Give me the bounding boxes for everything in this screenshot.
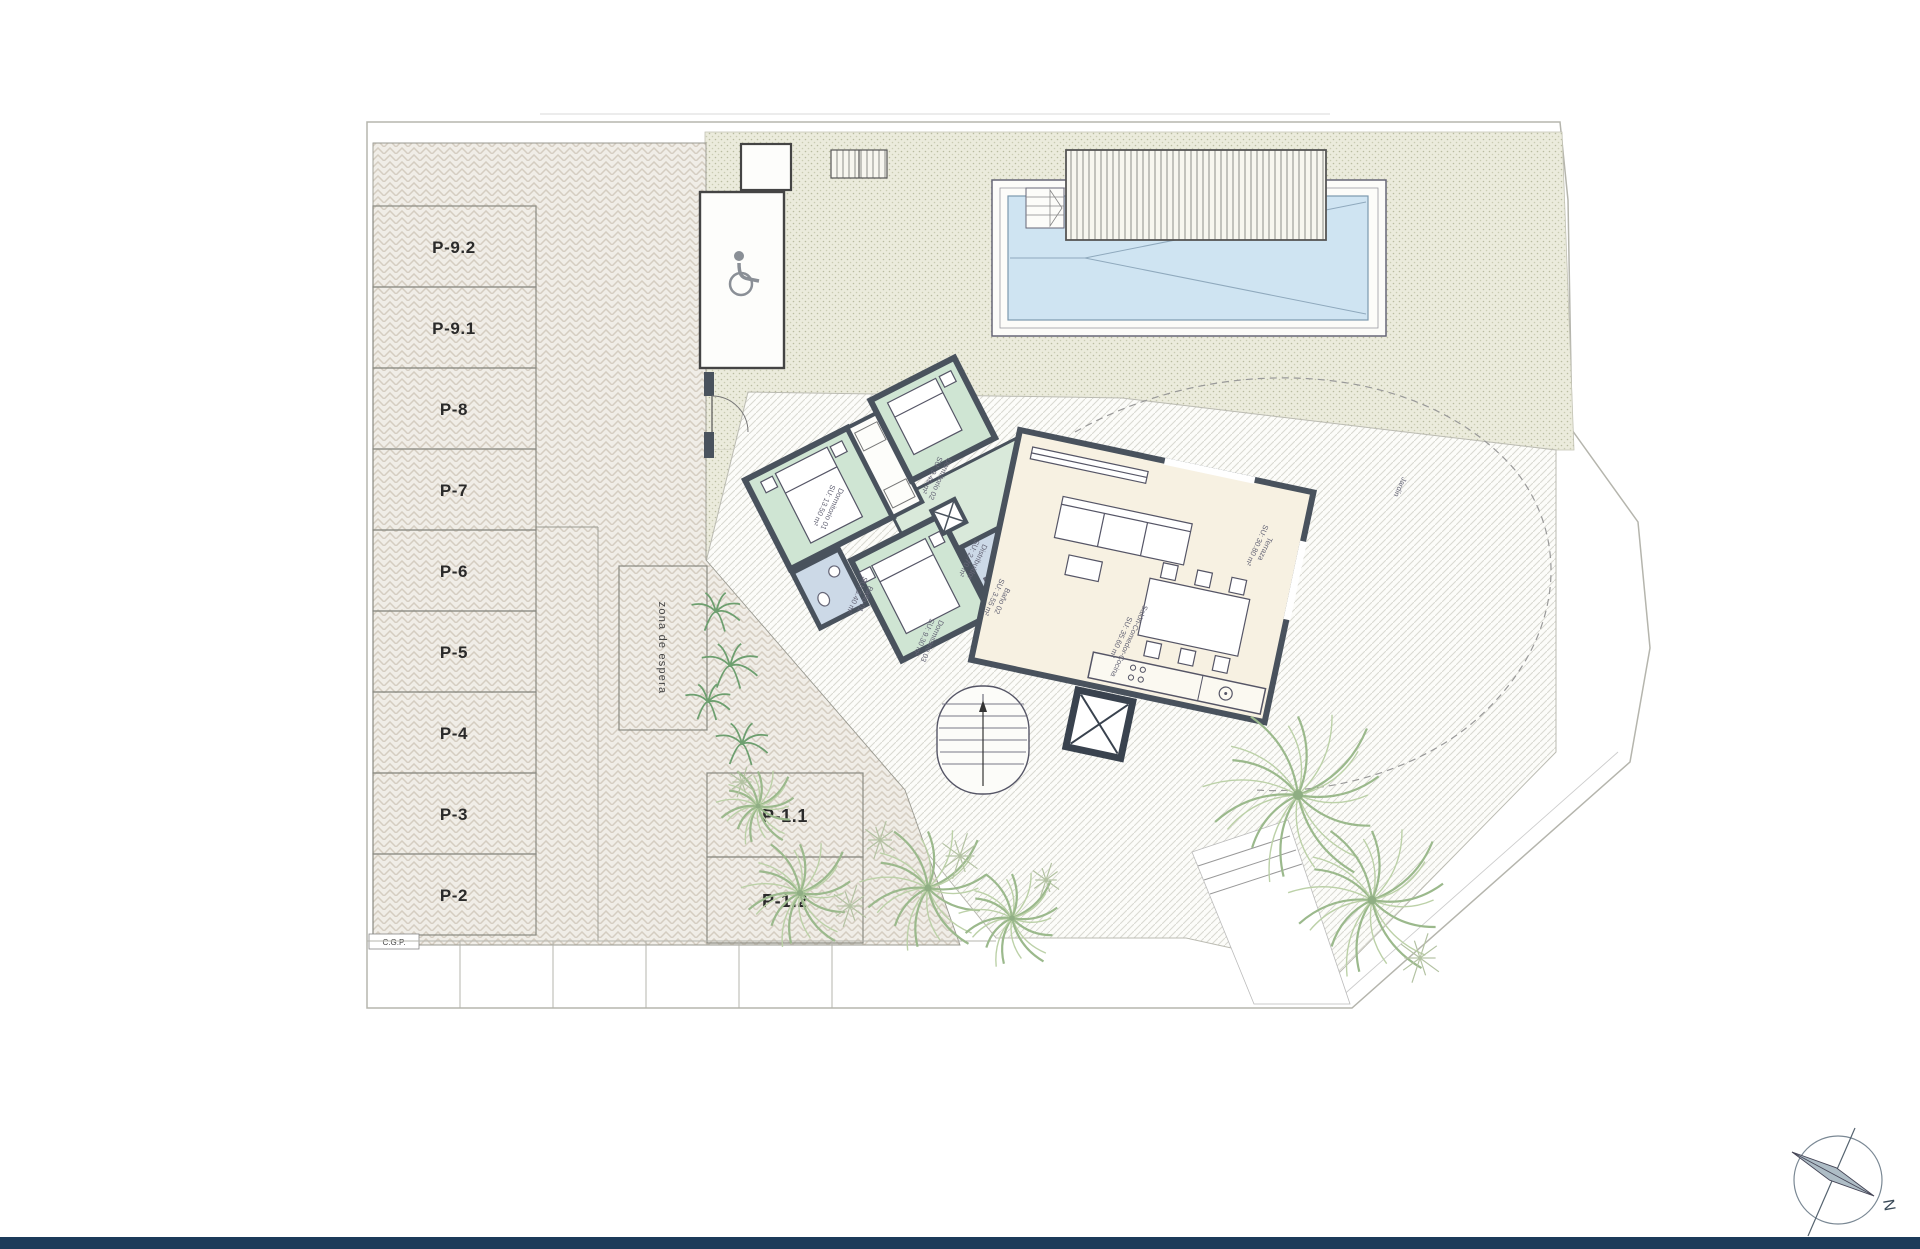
pool-steps xyxy=(1026,188,1064,228)
storage-box xyxy=(741,144,791,190)
accessible-stall xyxy=(700,192,784,368)
garden-bench xyxy=(831,150,887,178)
footer-bar xyxy=(0,1237,1920,1249)
parking-stall-label: P-2 xyxy=(440,886,468,905)
parking-stall-label: P-6 xyxy=(440,562,468,581)
parking-stall-label: P-7 xyxy=(440,481,468,500)
parking-stall-label: P-4 xyxy=(440,724,468,743)
site-plan: P-9.2 P-9.1 P-8 P-7 P-6 P-5 P-4 P-3 P-2 … xyxy=(0,0,1920,1249)
parking-stall-label: P-9.2 xyxy=(432,238,476,257)
parking-stall-label: P-9.1 xyxy=(432,319,476,338)
pergola xyxy=(1066,150,1326,240)
parking-stall-label: P-5 xyxy=(440,643,468,662)
elevator xyxy=(1066,690,1133,758)
cgp-label: C.G.P. xyxy=(383,938,406,947)
waiting-zone-label: zona de espera xyxy=(656,602,668,695)
parking-stall-label: P-8 xyxy=(440,400,468,419)
staircase xyxy=(937,686,1029,794)
parking-stall-label: P-3 xyxy=(440,805,468,824)
